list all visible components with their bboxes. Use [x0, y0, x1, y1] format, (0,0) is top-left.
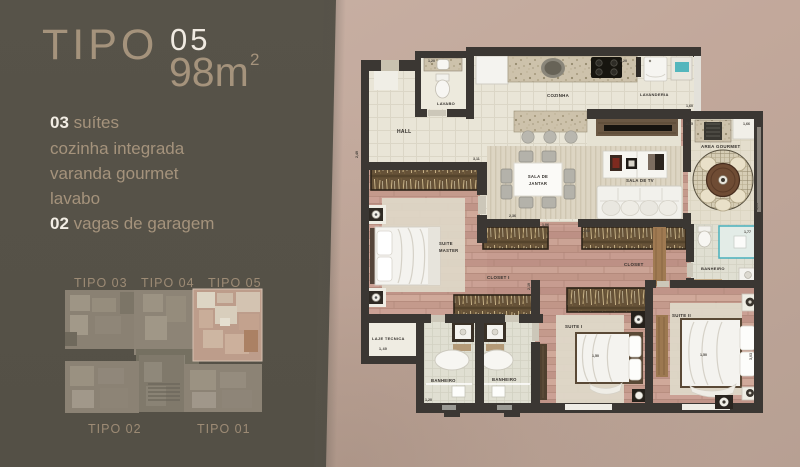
svg-text:LAVANDERIA: LAVANDERIA: [640, 92, 669, 97]
svg-text:cozinha integrada: cozinha integrada: [50, 139, 185, 158]
svg-text:TIPO: TIPO: [42, 21, 158, 69]
svg-text:CLOSET I: CLOSET I: [487, 275, 510, 280]
svg-text:CLOSET: CLOSET: [624, 262, 644, 267]
svg-text:TIPO 03: TIPO 03: [74, 276, 128, 290]
svg-text:SALA DE: SALA DE: [528, 174, 548, 179]
svg-text:TIPO 02: TIPO 02: [88, 422, 142, 436]
svg-text:LAVABO: LAVABO: [437, 101, 455, 106]
svg-text:BANHEIRO: BANHEIRO: [701, 266, 725, 271]
svg-text:98m: 98m: [169, 49, 249, 95]
svg-text:4,01: 4,01: [755, 203, 759, 210]
svg-text:2,36: 2,36: [509, 214, 516, 218]
svg-text:1,50: 1,50: [700, 353, 707, 357]
svg-text:SUITE: SUITE: [439, 241, 453, 246]
svg-text:03 suítes: 03 suítes: [50, 113, 119, 132]
svg-text:1,40: 1,40: [379, 347, 387, 351]
svg-text:HALL: HALL: [397, 129, 412, 135]
svg-text:varanda gourmet: varanda gourmet: [50, 164, 179, 183]
svg-text:SUITE I: SUITE I: [565, 324, 582, 329]
svg-text:1,20: 1,20: [428, 59, 435, 63]
svg-text:TIPO 04: TIPO 04: [141, 276, 195, 290]
svg-text:02 vagas de garagem: 02 vagas de garagem: [50, 214, 214, 233]
svg-text:1,66: 1,66: [743, 122, 750, 126]
svg-text:1,06: 1,06: [542, 223, 549, 227]
svg-text:2,19: 2,19: [527, 283, 531, 290]
svg-text:TIPO 01: TIPO 01: [197, 422, 251, 436]
svg-text:1,20: 1,20: [425, 398, 432, 402]
svg-text:1,50: 1,50: [592, 354, 599, 358]
svg-text:3,03: 3,03: [749, 353, 753, 360]
svg-text:1,60: 1,60: [686, 104, 693, 108]
svg-text:1,77: 1,77: [744, 230, 751, 234]
svg-text:BANHEIRO: BANHEIRO: [492, 377, 517, 382]
svg-text:SALA DE TV: SALA DE TV: [626, 178, 654, 183]
svg-text:2,75: 2,75: [686, 122, 693, 126]
svg-text:AREA GOURMET: AREA GOURMET: [701, 144, 741, 149]
svg-text:2: 2: [250, 50, 259, 69]
svg-text:4,20: 4,20: [620, 59, 627, 63]
svg-text:BANHEIRO: BANHEIRO: [431, 378, 456, 383]
svg-text:2,49: 2,49: [355, 151, 359, 158]
svg-text:COZINHA: COZINHA: [547, 93, 570, 98]
svg-text:JANTAR: JANTAR: [529, 181, 547, 186]
svg-text:SUITE II: SUITE II: [672, 313, 691, 318]
svg-text:TIPO 05: TIPO 05: [208, 276, 262, 290]
svg-text:2,62: 2,62: [583, 229, 590, 233]
svg-text:lavabo: lavabo: [50, 189, 100, 208]
svg-text:MASTER: MASTER: [439, 248, 458, 253]
svg-text:3,11: 3,11: [473, 157, 480, 161]
svg-text:LAJE TECNICA: LAJE TECNICA: [372, 336, 405, 341]
